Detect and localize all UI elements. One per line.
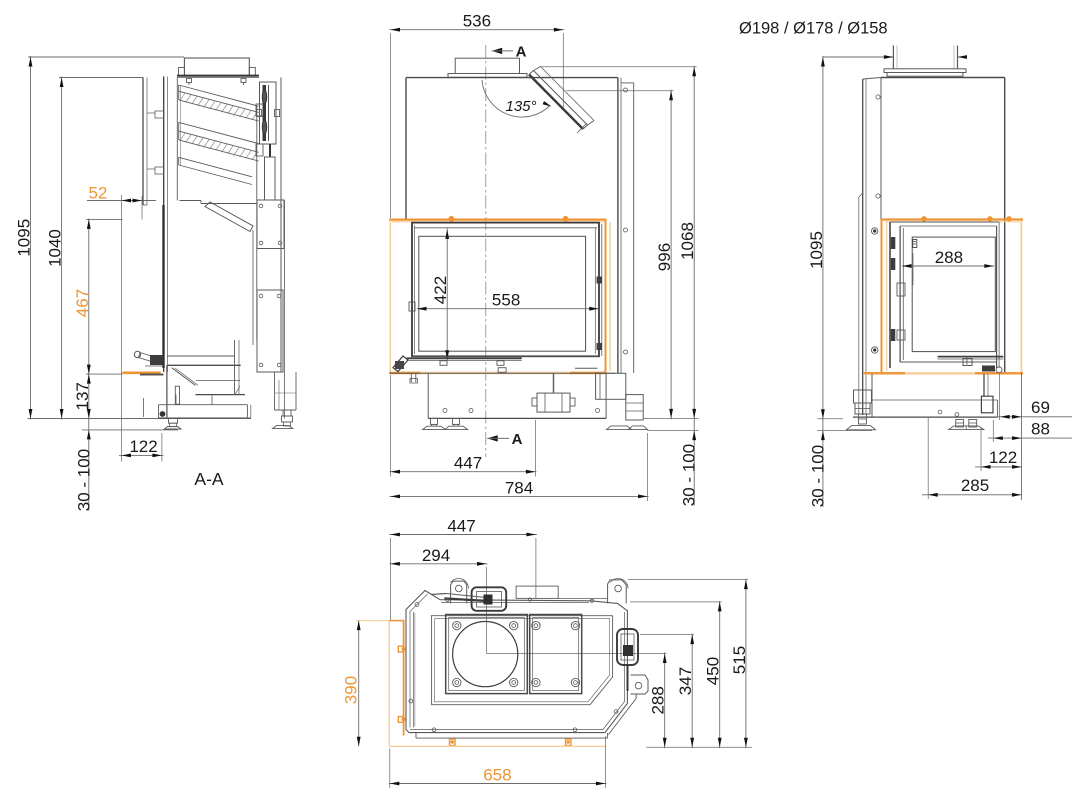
svg-text:30 - 100: 30 - 100 [680, 444, 699, 506]
svg-text:52: 52 [89, 184, 108, 203]
svg-text:Ø198 / Ø178 / Ø158: Ø198 / Ø178 / Ø158 [739, 20, 888, 38]
svg-text:347: 347 [676, 667, 695, 695]
svg-text:69: 69 [1031, 398, 1050, 417]
svg-text:88: 88 [1031, 420, 1050, 439]
svg-text:30 - 100: 30 - 100 [808, 445, 827, 507]
svg-text:515: 515 [730, 646, 749, 674]
svg-text:288: 288 [935, 248, 963, 267]
svg-text:135°: 135° [505, 98, 536, 115]
svg-text:558: 558 [492, 291, 520, 310]
svg-text:1040: 1040 [46, 229, 65, 267]
svg-text:122: 122 [989, 448, 1017, 467]
svg-text:137: 137 [73, 382, 92, 410]
svg-text:1095: 1095 [807, 231, 826, 269]
svg-text:294: 294 [422, 546, 450, 565]
svg-text:996: 996 [655, 243, 674, 271]
svg-text:A: A [512, 431, 523, 448]
svg-text:450: 450 [704, 657, 723, 685]
svg-text:447: 447 [447, 517, 475, 536]
svg-text:658: 658 [483, 766, 511, 785]
svg-text:1068: 1068 [678, 222, 697, 260]
svg-text:288: 288 [649, 686, 668, 714]
svg-text:390: 390 [342, 676, 361, 704]
svg-text:422: 422 [431, 276, 450, 304]
svg-text:784: 784 [505, 478, 533, 497]
svg-text:1095: 1095 [15, 219, 34, 257]
svg-text:30 - 100: 30 - 100 [74, 449, 93, 511]
svg-text:467: 467 [73, 289, 92, 317]
svg-text:285: 285 [961, 476, 989, 495]
svg-text:122: 122 [129, 437, 157, 456]
svg-text:536: 536 [463, 12, 491, 31]
svg-text:A-A: A-A [194, 469, 224, 489]
svg-text:447: 447 [454, 454, 482, 473]
